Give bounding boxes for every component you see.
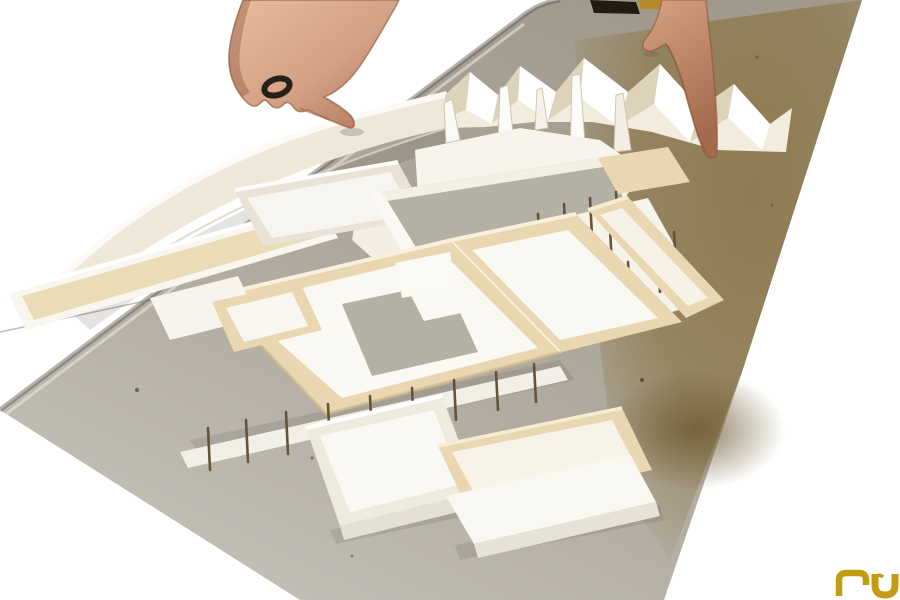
watch-strap [590, 0, 640, 14]
right-fingertip-shadow [643, 51, 659, 57]
photo-canvas [0, 0, 900, 600]
photo-of-architectural-model [0, 0, 900, 600]
fingertip-shadow [340, 128, 364, 136]
